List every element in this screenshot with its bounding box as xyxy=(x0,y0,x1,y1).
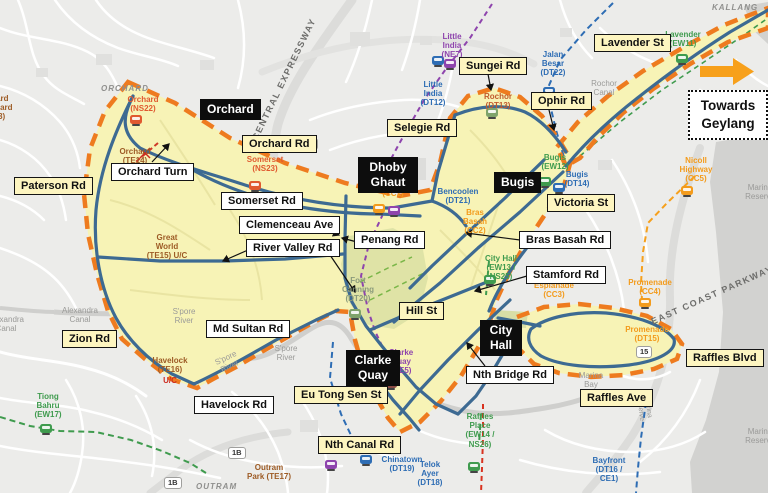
road-label-stamford-rd: Stamford Rd xyxy=(526,266,606,284)
road-label-lavender-st: Lavender St xyxy=(594,34,671,52)
district-label-clarke-quay: Clarke Quay xyxy=(346,350,400,386)
road-label-eu-tong-sen-st: Eu Tong Sen St xyxy=(294,386,388,404)
singapore-cordon-map: Orchard (NS22) Orchard (TE14) Orchard Bo… xyxy=(0,0,768,493)
road-label-raffles-blvd: Raffles Blvd xyxy=(686,349,764,367)
station-label-bras-basah-cc2: Bras Basah (CC2) xyxy=(456,208,494,236)
area-label-kallang: KALLANG xyxy=(712,3,758,12)
station-label-somerset-ns23: Somerset (NS23) xyxy=(240,155,290,173)
towards-line1: Towards xyxy=(699,97,757,115)
station-label-promenade-cc4: Promenade (CC4) xyxy=(620,278,680,296)
water-label-spore-river-1: S'pore River xyxy=(168,308,200,326)
road-label-victoria-st: Victoria St xyxy=(547,194,615,212)
road-label-orchard-turn: Orchard Turn xyxy=(111,163,194,181)
station-label-havelock-uc: U/C xyxy=(158,376,182,385)
towards-line2: Geylang xyxy=(699,115,757,133)
district-label-dhoby-ghaut: Dhoby Ghaut xyxy=(358,157,418,193)
train-icon-dhoby-cc xyxy=(373,204,385,213)
water-label-spore-river-3: S'pore River xyxy=(270,345,302,363)
station-label-bencoolen-dt21: Bencoolen (DT21) xyxy=(430,187,486,205)
train-icon-lavender-ew xyxy=(676,54,688,63)
area-label-orchard: ORCHARD xyxy=(101,84,149,93)
road-label-river-valley-rd: River Valley Rd xyxy=(246,239,340,257)
station-label-orchard-ns22: Orchard (NS22) xyxy=(121,95,165,113)
station-label-rochor-dt13: Rochor (DT13) xyxy=(476,92,520,110)
road-label-selegie-rd: Selegie Rd xyxy=(387,119,457,137)
water-label-marina-bay: Marina Bay xyxy=(574,372,608,390)
water-label-alexandra-canal: Alexandra Canal xyxy=(54,307,106,325)
road-label-md-sultan-rd: Md Sultan Rd xyxy=(206,320,290,338)
road-label-orchard-rd: Orchard Rd xyxy=(242,135,317,153)
towards-geylang-box: Towards Geylang xyxy=(688,90,768,140)
station-label-bugis-dt14: Bugis (DT14) xyxy=(556,170,598,188)
train-icon-tiong-bahru-ew xyxy=(40,424,52,433)
road-label-hill-st: Hill St xyxy=(399,302,444,320)
road-label-nth-canal-rd: Nth Canal Rd xyxy=(318,436,401,454)
water-label-marina-reserve-1: Marina Reserve xyxy=(738,184,768,202)
train-icon-somerset-ns xyxy=(249,181,261,190)
road-label-havelock-rd: Havelock Rd xyxy=(194,396,274,414)
station-label-nicoll-highway-cc5: Nicoll Highway (CC5) xyxy=(672,156,720,184)
road-badge-1b-a: 1B xyxy=(228,447,246,459)
road-label-clemenceau-ave: Clemenceau Ave xyxy=(239,216,340,234)
road-label-paterson-rd: Paterson Rd xyxy=(14,177,93,195)
district-label-bugis: Bugis xyxy=(494,172,541,193)
road-label-nth-bridge-rd: Nth Bridge Rd xyxy=(466,366,554,384)
station-label-bayfront: Bayfront (DT16 / CE1) xyxy=(586,456,632,484)
road-label-raffles-ave: Raffles Ave xyxy=(580,389,653,407)
road-label-bras-basah-rd: Bras Basah Rd xyxy=(519,231,611,249)
station-label-city-hall-ew13-ns25: City Hall (EW13 / NS25) xyxy=(482,254,520,282)
station-label-fort-canning-dt20: Fort Canning (DT20) xyxy=(336,276,380,304)
road-badge-15: 15 xyxy=(636,346,652,358)
station-label-havelock-te16: Havelock (TE16) xyxy=(142,356,198,374)
station-label-outram-park-te17: Outram Park (TE17) xyxy=(246,463,292,481)
station-label-orchard-blvd-te13: Orchard Boulevard (TE13) xyxy=(0,94,16,122)
road-label-penang-rd: Penang Rd xyxy=(354,231,425,249)
station-label-little-india-ne7: Little India (NE7) xyxy=(434,32,470,60)
water-label-marina-reserve-2: Marina Reserve xyxy=(738,428,768,446)
station-label-great-world-te15: Great World (TE15) U/C xyxy=(146,233,188,261)
station-label-little-india-dt12: Little India (DT12) xyxy=(414,80,452,108)
road-label-zion-rd: Zion Rd xyxy=(62,330,117,348)
district-label-city-hall: City Hall xyxy=(480,320,522,356)
train-icon-dhoby-ne xyxy=(388,206,400,215)
road-label-sungei-rd: Sungei Rd xyxy=(459,57,527,75)
station-label-tiong-bahru-ew17: Tiong Bahru (EW17) xyxy=(26,392,70,420)
station-label-bugis-ew12: Bugis (EW12) xyxy=(534,153,576,171)
station-label-raffles-place: Raffles Place (EW14 / NS26) xyxy=(458,412,502,449)
area-label-outram: OUTRAM xyxy=(196,482,237,491)
train-icon-fort-canning xyxy=(349,309,361,318)
train-icon-raffles-place-ew xyxy=(468,462,480,471)
station-label-jalan-besar-dt22: Jalan Besar (DT22) xyxy=(534,50,572,78)
train-icon-chinatown-dt xyxy=(360,455,372,464)
water-label-alexandra-canal-2: Alexandra Canal xyxy=(0,316,28,334)
road-label-ophir-rd: Ophir Rd xyxy=(531,92,592,110)
train-icon-promenade-cc xyxy=(639,298,651,307)
road-badge-1b-b: 1B xyxy=(164,477,182,489)
train-icon-little-india-ne xyxy=(444,59,456,68)
station-label-telok-ayer-dt18: Telok Ayer (DT18) xyxy=(412,460,448,488)
train-icon-nicoll-highway-cc xyxy=(681,186,693,195)
train-icon-chinatown-ne xyxy=(325,460,337,469)
train-icon-orchard-ns xyxy=(130,115,142,124)
road-label-somerset-rd: Somerset Rd xyxy=(221,192,303,210)
district-label-orchard: Orchard xyxy=(200,99,261,120)
station-label-promenade-dt15: Promenade (DT15) xyxy=(616,325,678,343)
